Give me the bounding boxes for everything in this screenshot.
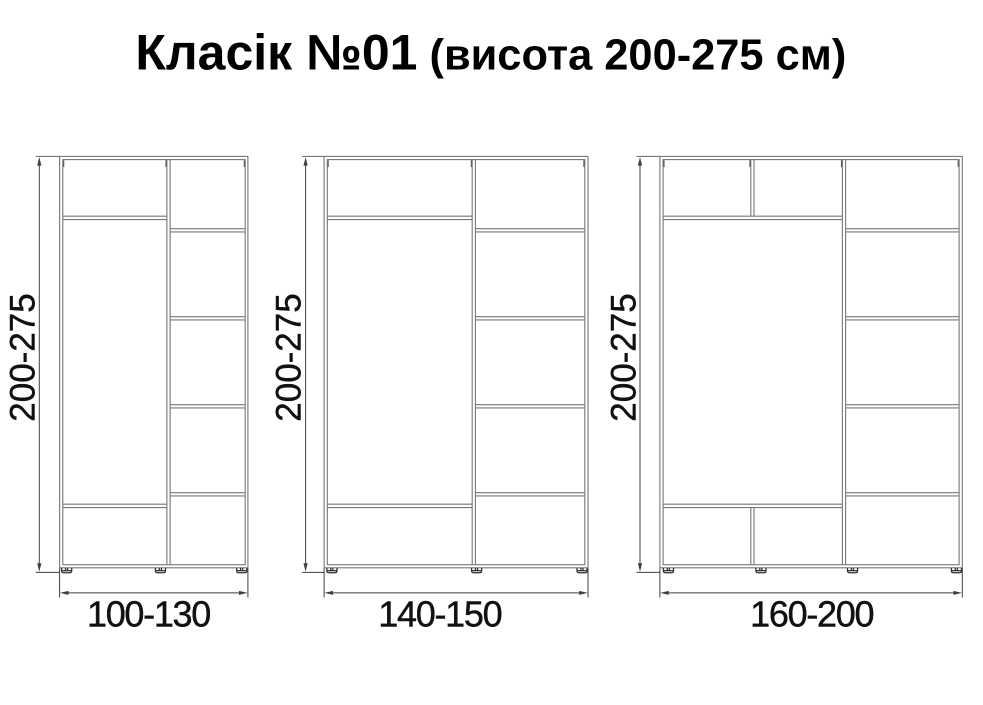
svg-text:200-275: 200-275	[605, 293, 644, 421]
svg-text:Класік №01 (висота 200-275 см): Класік №01 (висота 200-275 см)	[135, 24, 846, 80]
svg-text:200-275: 200-275	[270, 293, 309, 421]
svg-text:200-275: 200-275	[3, 293, 42, 421]
svg-text:100-130: 100-130	[87, 593, 210, 634]
svg-text:140-150: 140-150	[378, 593, 501, 634]
svg-text:160-200: 160-200	[750, 593, 873, 634]
